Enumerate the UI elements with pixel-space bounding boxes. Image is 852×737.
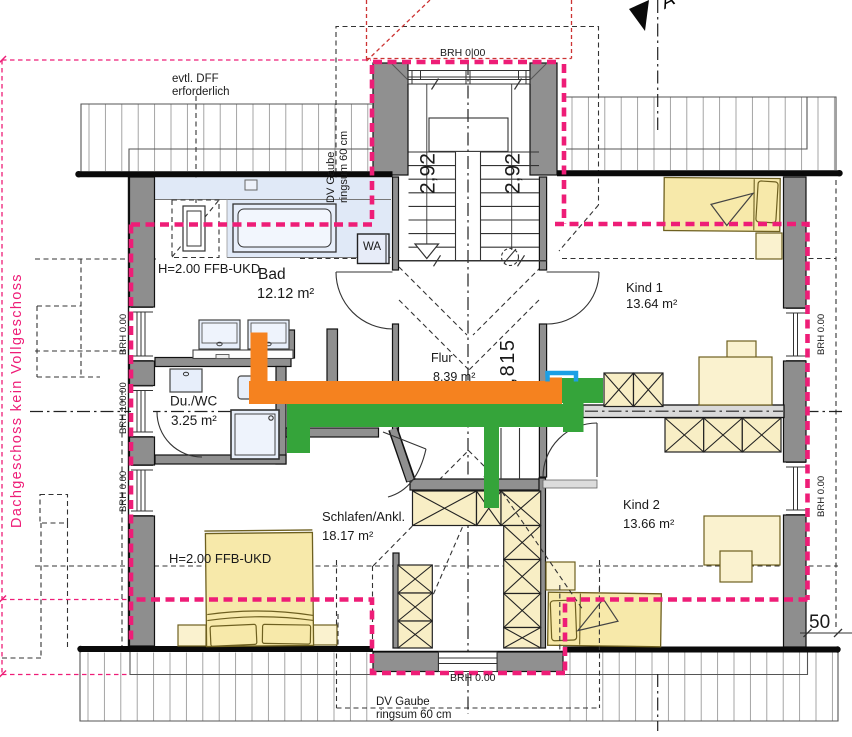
svg-text:BRH 0.00: BRH 0.00 [816, 314, 827, 355]
svg-text:BRH 0.00: BRH 0.00 [118, 471, 129, 512]
svg-text:ringsum 60 cm: ringsum 60 cm [376, 709, 451, 721]
svg-text:2,92: 2,92 [502, 153, 525, 194]
svg-text:13.66 m²: 13.66 m² [623, 516, 675, 531]
svg-text:BRH.100.00: BRH.100.00 [118, 382, 129, 434]
svg-text:H=2.00 FFB-UKD: H=2.00 FFB-UKD [169, 551, 271, 566]
svg-text:2,92: 2,92 [417, 153, 440, 194]
svg-text:Bad: Bad [258, 266, 286, 283]
svg-text:BRH 0.00: BRH 0.00 [450, 672, 496, 684]
svg-text:Du./WC: Du./WC [170, 394, 218, 409]
svg-text:12.12 m²: 12.12 m² [257, 286, 314, 302]
svg-text:H=2.00 FFB-UKD: H=2.00 FFB-UKD [158, 261, 260, 276]
svg-text:evtl. DFF: evtl. DFF [172, 73, 219, 85]
svg-text:50: 50 [809, 612, 830, 633]
svg-text:DV Gaube: DV Gaube [325, 152, 337, 203]
svg-text:Kind 1: Kind 1 [626, 280, 663, 295]
svg-text:Kind 2: Kind 2 [623, 497, 660, 512]
svg-text:8.39 m²: 8.39 m² [433, 370, 475, 384]
svg-text:18.17 m²: 18.17 m² [322, 528, 374, 543]
svg-text:BRH 0.00: BRH 0.00 [816, 476, 827, 517]
svg-text:Schlafen/Ankl.: Schlafen/Ankl. [322, 509, 405, 524]
svg-text:BRH 0|00: BRH 0|00 [440, 47, 485, 59]
svg-text:3.25 m²: 3.25 m² [171, 413, 217, 428]
svg-text:WA: WA [363, 241, 381, 253]
svg-text:BRH 0.00: BRH 0.00 [118, 314, 129, 355]
svg-text:Dachgeschoss kein Vollgeschoss: Dachgeschoss kein Vollgeschoss [9, 273, 25, 528]
svg-text:ringsum 60 cm: ringsum 60 cm [338, 131, 350, 203]
svg-text:13.64 m²: 13.64 m² [626, 296, 678, 311]
svg-text:DV Gaube: DV Gaube [376, 696, 430, 708]
svg-text:erforderlich: erforderlich [172, 86, 230, 98]
svg-text:Flur: Flur [431, 351, 453, 365]
